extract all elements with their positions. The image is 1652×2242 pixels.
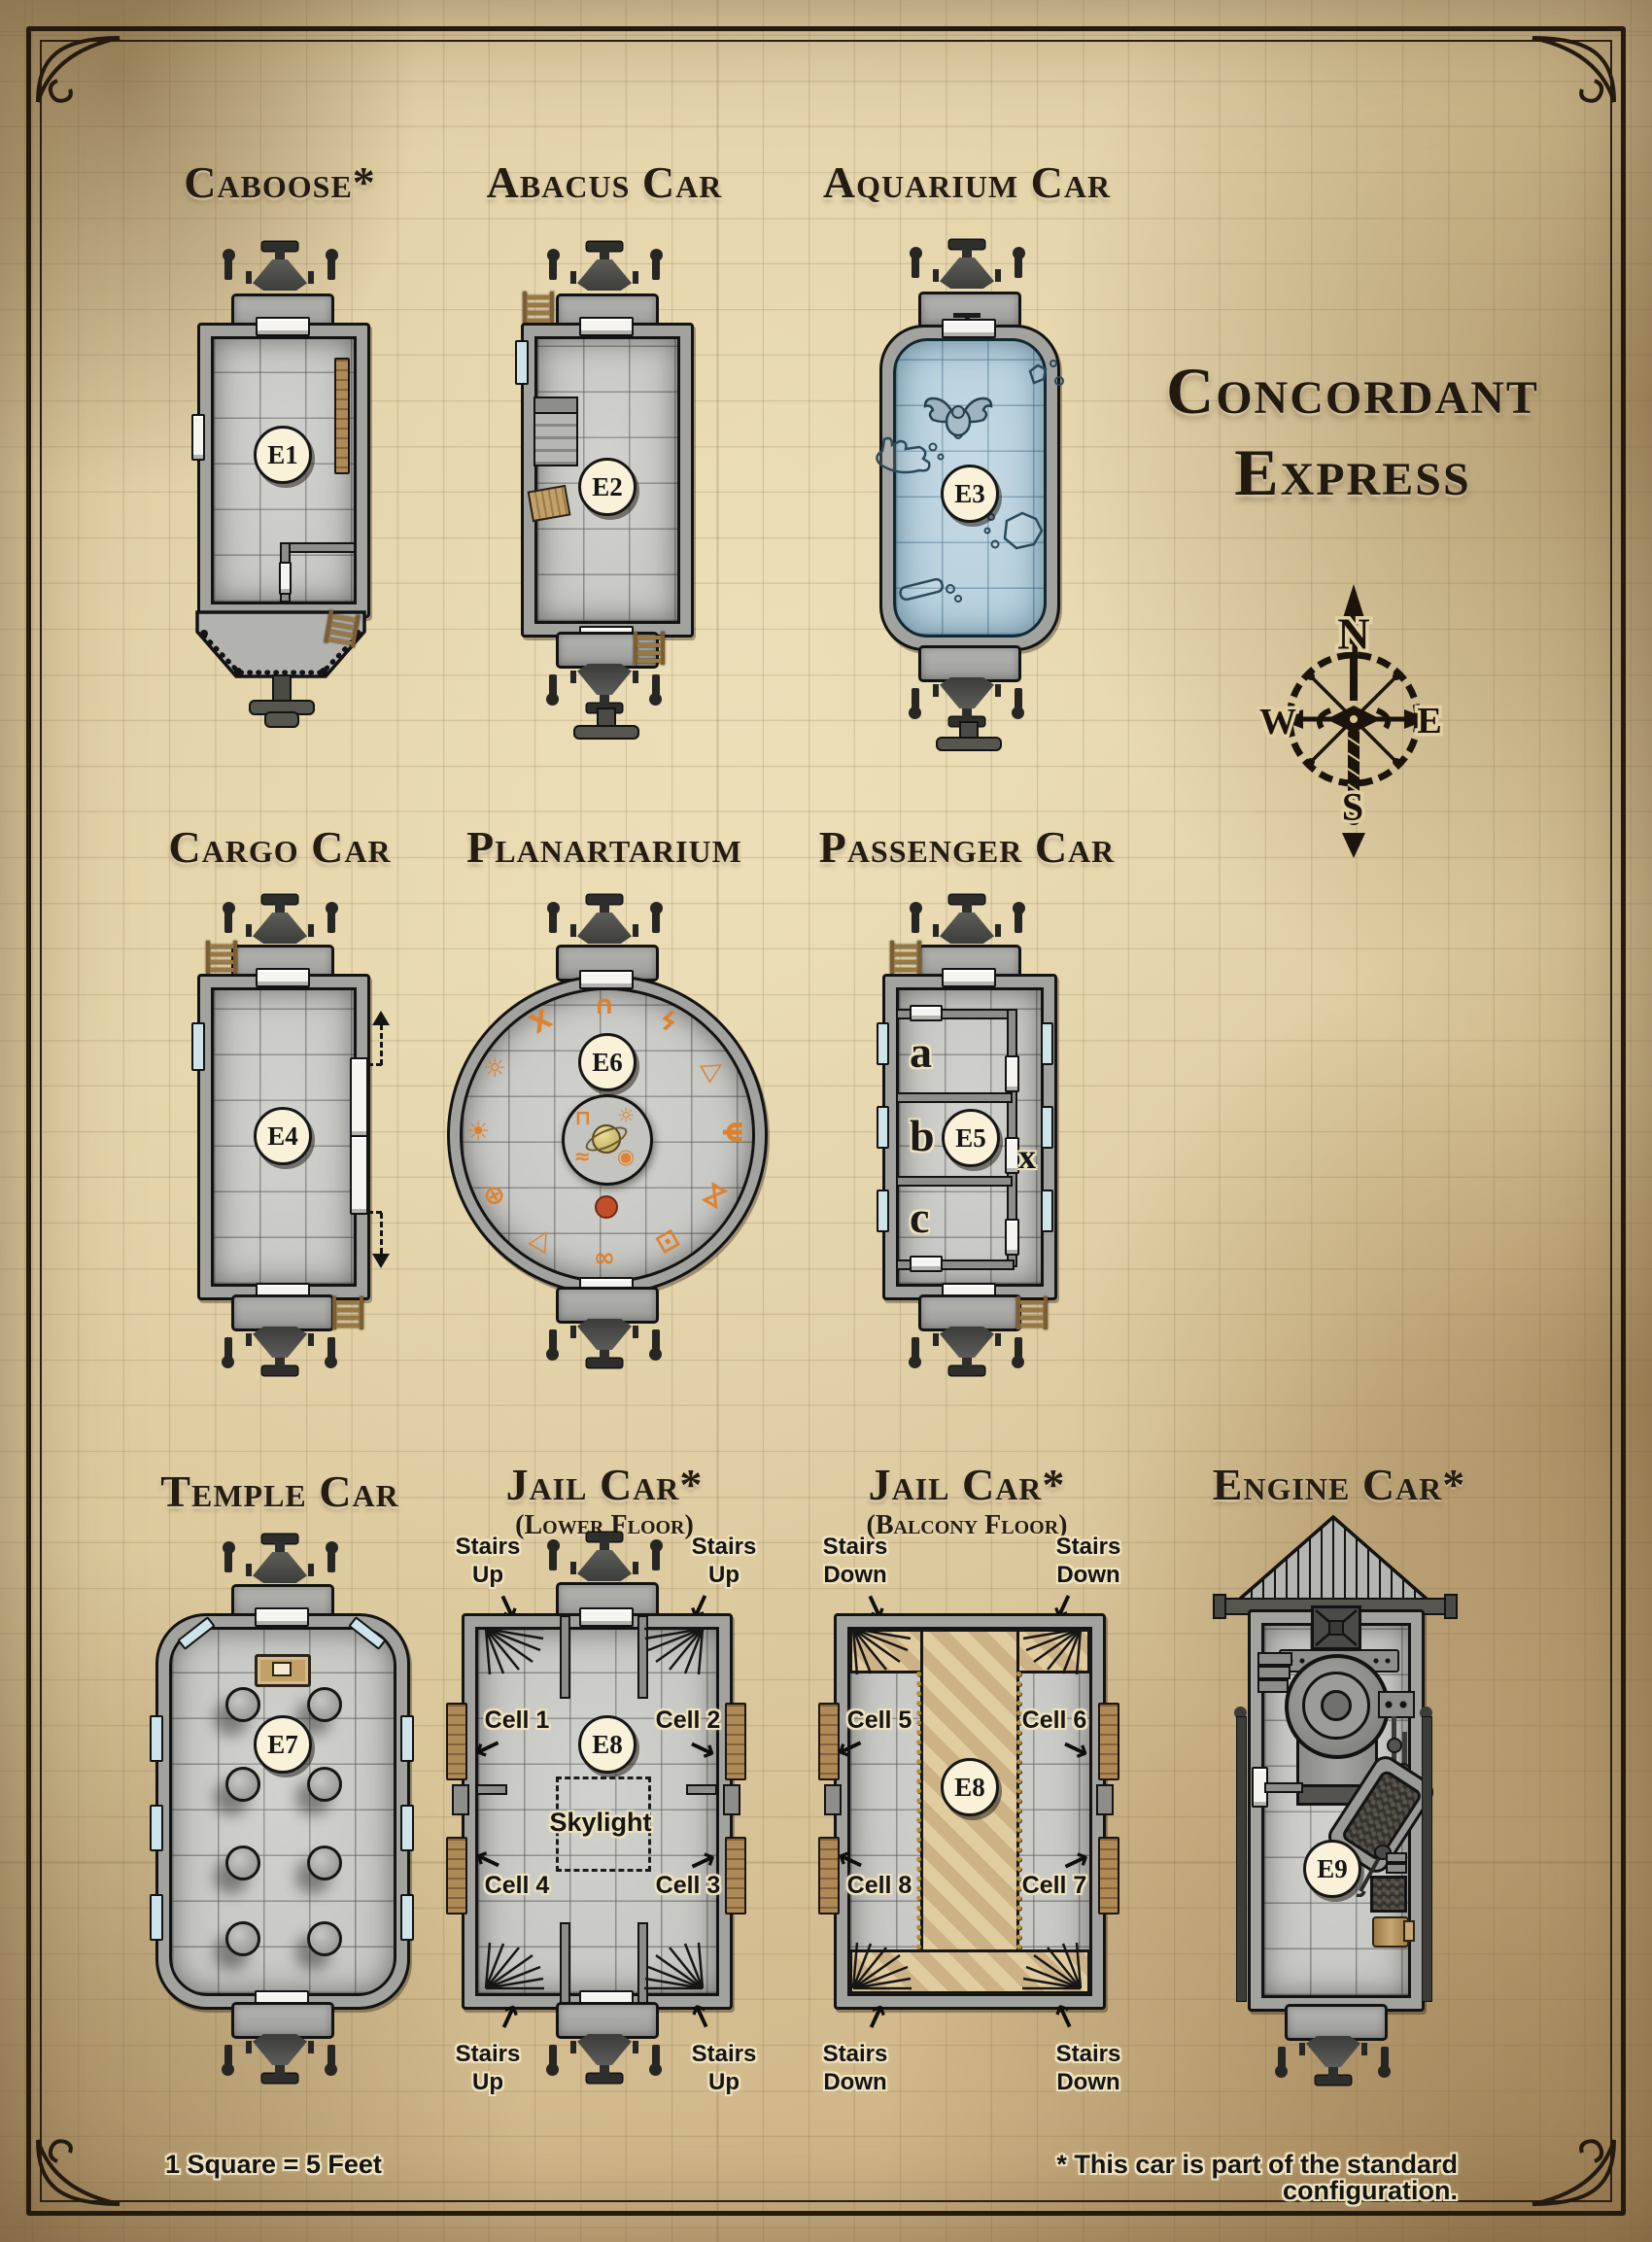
window <box>150 1805 163 1851</box>
room-label-e2: E2 <box>578 458 637 516</box>
roof-machinery <box>532 245 677 292</box>
ladder-icon <box>1016 1296 1048 1329</box>
pillar <box>225 1767 260 1802</box>
tool-tray <box>1386 1863 1407 1874</box>
cell-6-label: Cell 6 <box>996 1708 1113 1733</box>
roof-machinery <box>532 1318 677 1364</box>
room-label-e8-balcony: E8 <box>941 1758 999 1816</box>
roof-machinery <box>894 676 1040 723</box>
slide-arrow-icon <box>367 1063 382 1066</box>
corridor-x-label: x <box>1018 1139 1036 1174</box>
door <box>579 1607 634 1627</box>
slide-arrow-icon <box>372 1011 390 1025</box>
spiral-stairs-icon <box>484 1942 546 1990</box>
sliding-door <box>350 1057 368 1137</box>
door <box>279 562 292 595</box>
bench <box>334 358 350 474</box>
room-label-e5: E5 <box>942 1109 1000 1167</box>
door <box>1005 1137 1019 1174</box>
stairs-down-label: Stairs Down <box>792 1534 918 1590</box>
compartment-a-label: a <box>910 1030 932 1075</box>
stairs-up-label: Stairs Up <box>425 2041 551 2097</box>
window <box>877 1106 889 1149</box>
window <box>191 1022 205 1071</box>
barrel <box>1403 1920 1415 1942</box>
stairs-down-label: Stairs Down <box>1025 2041 1152 2097</box>
spiral-stairs-icon <box>642 1627 705 1675</box>
stairs-steps <box>533 412 578 466</box>
cell-2-label: Cell 2 <box>630 1708 746 1733</box>
room-label-e4: E4 <box>254 1107 312 1165</box>
arcane-symbol: ☀ <box>464 1118 493 1147</box>
cell-5-label: Cell 5 <box>821 1708 938 1733</box>
door <box>942 319 996 338</box>
arcane-symbol: ☼ <box>614 1104 637 1127</box>
compass-south-label: S <box>1342 785 1363 829</box>
room-label-e3: E3 <box>941 465 999 523</box>
window <box>1041 1022 1053 1065</box>
red-marker <box>595 1195 618 1219</box>
window <box>400 1805 414 1851</box>
roof-machinery <box>532 663 677 709</box>
ladder-icon <box>206 941 237 974</box>
ladder-icon <box>324 609 360 647</box>
arcane-symbol: ∞ <box>590 1244 619 1273</box>
roof-machinery <box>207 1326 353 1372</box>
roof-machinery <box>207 1537 353 1584</box>
window <box>400 1715 414 1762</box>
stairs-up-label: Stairs Up <box>661 1534 787 1590</box>
cowcatcher <box>1236 1514 1430 1606</box>
map-title-line1: Concordant <box>1110 350 1596 431</box>
roof-machinery <box>207 898 353 945</box>
aquarium-title: Aquarium Car <box>753 160 1181 205</box>
side-rod <box>1422 1716 1432 2002</box>
side-rod <box>1236 1716 1247 2002</box>
coupler <box>264 711 299 728</box>
interior-wall <box>476 1784 507 1795</box>
wall-notch <box>824 1784 842 1815</box>
roof-machinery <box>894 1326 1040 1372</box>
abacus-desk <box>528 485 571 522</box>
steam-hatch <box>1314 1608 1359 1647</box>
pillar <box>307 1845 342 1880</box>
interior-wall <box>560 1922 570 2006</box>
arcane-symbol: ⊓ <box>571 1106 595 1129</box>
pillar <box>225 1845 260 1880</box>
window <box>150 1894 163 1941</box>
compass-east-label: E <box>1417 701 1441 742</box>
window <box>1041 1190 1053 1232</box>
bumper-cap <box>1213 1594 1226 1619</box>
arcane-symbol: Ψ <box>716 1118 745 1147</box>
machinery-plate <box>1378 1691 1415 1718</box>
wall-notch <box>1096 1784 1114 1815</box>
interior-wall <box>896 1092 1013 1103</box>
rock-debris <box>896 568 964 610</box>
pipe <box>1387 1738 1402 1753</box>
arcane-symbol: ☼ <box>480 1054 509 1084</box>
room-label-e8-lower: E8 <box>578 1715 637 1774</box>
stairs-down-label: Stairs Down <box>792 2041 918 2097</box>
arcane-symbol: ◉ <box>614 1145 637 1168</box>
spiral-stairs-icon <box>1020 1627 1083 1675</box>
skylight-label: Skylight <box>523 1810 678 1836</box>
map-title-line2: Express <box>1110 431 1596 513</box>
door <box>255 1607 309 1627</box>
window <box>877 1022 889 1065</box>
door <box>579 317 634 336</box>
map-title: Concordant Express <box>1110 350 1596 514</box>
window <box>877 1190 889 1232</box>
interior-wall <box>896 1176 1013 1187</box>
interior-wall <box>686 1784 717 1795</box>
wall-notch <box>452 1784 469 1815</box>
spiral-stairs-icon <box>851 1627 913 1675</box>
window <box>150 1715 163 1762</box>
pillar <box>307 1921 342 1956</box>
scale-note: 1 Square = 5 Feet <box>165 2152 382 2178</box>
standard-config-footnote: * This car is part of the standard confi… <box>875 2152 1458 2204</box>
battle-map: Concordant Express N E W S Caboose* Abac… <box>0 0 1652 2242</box>
roof-machinery <box>894 243 1040 290</box>
passenger-title: Passenger Car <box>753 825 1181 870</box>
wall-notch <box>723 1784 740 1815</box>
coal-crate <box>1370 1876 1407 1913</box>
roof-machinery <box>532 1535 677 1582</box>
rock-debris <box>871 431 948 488</box>
interior-wall <box>280 542 356 553</box>
ladder-icon <box>890 941 921 974</box>
cell-7-label: Cell 7 <box>996 1874 1113 1898</box>
ladder-icon <box>332 1296 363 1329</box>
door <box>191 414 205 461</box>
room-label-e6: E6 <box>578 1033 637 1091</box>
compass-rose: N E W S <box>1256 580 1451 862</box>
bumper-cap <box>1444 1594 1458 1619</box>
stairs-up-label: Stairs Up <box>425 1534 551 1590</box>
coupler <box>573 725 639 740</box>
ladder-icon <box>634 632 665 665</box>
ladder-icon <box>523 292 554 325</box>
slide-arrow-icon <box>380 1213 383 1254</box>
interior-wall <box>560 1615 570 1699</box>
door <box>1005 1055 1019 1092</box>
arcane-symbol: ∩ <box>590 991 619 1020</box>
spiral-stairs-icon <box>1020 1942 1083 1990</box>
window <box>400 1894 414 1941</box>
spiral-stairs-icon <box>851 1942 913 1990</box>
jail-balcony-title: Jail Car* <box>753 1463 1181 1507</box>
door <box>910 1005 943 1021</box>
engine-title: Engine Car* <box>1125 1463 1553 1507</box>
stairs-down-label: Stairs Down <box>1025 1534 1152 1590</box>
door <box>1005 1219 1019 1256</box>
rock-debris <box>1022 352 1067 397</box>
roof-machinery <box>207 245 353 292</box>
door <box>942 968 996 987</box>
side-steps <box>1257 1652 1292 1666</box>
roof-machinery <box>894 898 1040 945</box>
altar <box>272 1662 292 1676</box>
compass-west-label: W <box>1259 702 1296 742</box>
sliding-door <box>350 1135 368 1215</box>
roof-machinery <box>207 2033 353 2080</box>
pillar <box>225 1687 260 1722</box>
compass-north-label: N <box>1337 609 1369 659</box>
door <box>579 970 634 989</box>
slide-arrow-icon <box>380 1024 383 1065</box>
side-steps <box>1257 1679 1289 1693</box>
door <box>910 1256 943 1272</box>
room-label-e7: E7 <box>254 1715 312 1774</box>
spiral-stairs-icon <box>642 1942 705 1990</box>
coupler <box>936 737 1002 751</box>
roof-machinery <box>532 898 677 945</box>
compartment-c-label: c <box>910 1195 929 1240</box>
room-label-e1: E1 <box>254 426 312 484</box>
window <box>515 340 529 385</box>
pillar <box>307 1687 342 1722</box>
roof-machinery <box>532 2033 677 2080</box>
interior-wall <box>1264 1782 1303 1793</box>
cell-1-label: Cell 1 <box>459 1708 575 1733</box>
side-steps <box>1257 1666 1291 1679</box>
slide-arrow-icon <box>372 1254 390 1268</box>
pillar <box>307 1767 342 1802</box>
pillar <box>225 1921 260 1956</box>
stairs-up-label: Stairs Up <box>661 2041 787 2097</box>
spiral-stairs-icon <box>484 1627 546 1675</box>
roof-machinery <box>1260 2035 1406 2082</box>
tool-tray <box>1386 1852 1407 1863</box>
window <box>1041 1106 1053 1149</box>
door <box>256 317 310 336</box>
compartment-b-label: b <box>910 1114 935 1158</box>
boiler <box>1321 1690 1352 1721</box>
cell-3-label: Cell 3 <box>630 1874 746 1898</box>
door <box>256 968 310 987</box>
